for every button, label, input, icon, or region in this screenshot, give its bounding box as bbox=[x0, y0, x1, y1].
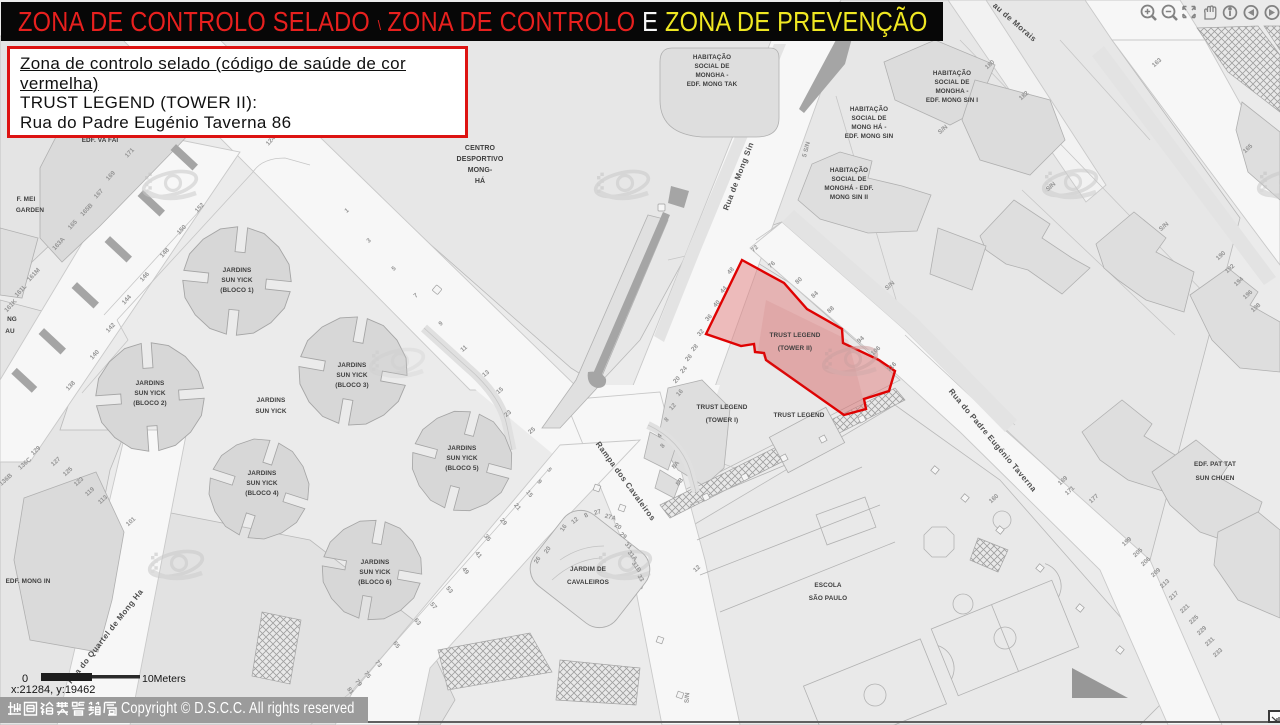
svg-text:MONGHA -: MONGHA - bbox=[695, 72, 728, 79]
svg-text:(BLOCO 4): (BLOCO 4) bbox=[245, 490, 279, 497]
svg-text:HABITAÇÃO: HABITAÇÃO bbox=[850, 104, 888, 113]
svg-text:SUN YICK: SUN YICK bbox=[255, 408, 287, 415]
svg-text:(BLOCO 3): (BLOCO 3) bbox=[335, 382, 369, 389]
svg-text:JARDINS: JARDINS bbox=[248, 470, 277, 477]
svg-text:CENTRO: CENTRO bbox=[465, 145, 496, 152]
svg-text:EDF. MONG SIN I: EDF. MONG SIN I bbox=[926, 97, 978, 104]
svg-text:MONGHA -: MONGHA - bbox=[935, 88, 968, 95]
svg-text:SUN YICK: SUN YICK bbox=[336, 372, 368, 379]
svg-text:EDF. VA FAI: EDF. VA FAI bbox=[82, 137, 119, 144]
svg-text:SUN YICK: SUN YICK bbox=[246, 480, 278, 487]
svg-text:MONG SIN II: MONG SIN II bbox=[830, 194, 868, 201]
svg-text:TRUST LEGEND: TRUST LEGEND bbox=[774, 412, 825, 419]
svg-text:HABITAÇÃO: HABITAÇÃO bbox=[693, 52, 731, 61]
svg-text:ESCOLA: ESCOLA bbox=[814, 582, 842, 589]
svg-text:MONGHÁ - EDF.: MONGHÁ - EDF. bbox=[824, 183, 873, 192]
svg-text:EDF. MONG SIN: EDF. MONG SIN bbox=[845, 133, 894, 140]
svg-text:TRUST LEGEND: TRUST LEGEND bbox=[697, 404, 748, 411]
svg-text:EDF. MONG TAK: EDF. MONG TAK bbox=[687, 81, 738, 88]
svg-text:SUN CHUEN: SUN CHUEN bbox=[1196, 475, 1235, 482]
svg-text:AU: AU bbox=[5, 328, 15, 335]
svg-text:(TOWER I): (TOWER I) bbox=[706, 417, 738, 424]
svg-text:JARDIM DE: JARDIM DE bbox=[570, 566, 607, 573]
svg-text:SOCIAL DE: SOCIAL DE bbox=[694, 63, 729, 70]
svg-text:(BLOCO 2): (BLOCO 2) bbox=[133, 400, 167, 407]
svg-text:10Meters: 10Meters bbox=[142, 673, 186, 685]
svg-text:SUN YICK: SUN YICK bbox=[446, 455, 478, 462]
svg-text:MONG-: MONG- bbox=[468, 167, 493, 174]
svg-text:SUN YICK: SUN YICK bbox=[221, 277, 253, 284]
svg-text:HABITAÇÃO: HABITAÇÃO bbox=[933, 68, 971, 77]
svg-text:(TOWER II): (TOWER II) bbox=[778, 345, 812, 352]
svg-text:EDF. MONG IN: EDF. MONG IN bbox=[6, 578, 51, 585]
svg-text:HABITAÇÃO: HABITAÇÃO bbox=[830, 165, 868, 174]
svg-text:NG: NG bbox=[7, 316, 17, 323]
svg-text:EDF. PAT TAT: EDF. PAT TAT bbox=[1194, 461, 1236, 468]
svg-text:SUN YICK: SUN YICK bbox=[359, 569, 391, 576]
svg-text:SÃO PAULO: SÃO PAULO bbox=[809, 593, 847, 602]
svg-text:JARDINS: JARDINS bbox=[448, 445, 477, 452]
svg-text:(BLOCO 1): (BLOCO 1) bbox=[220, 287, 254, 294]
svg-text:JARDINS: JARDINS bbox=[136, 380, 165, 387]
svg-text:S/N: S/N bbox=[684, 692, 692, 704]
svg-text:JARDINS: JARDINS bbox=[361, 559, 390, 566]
svg-text:DESPORTIVO: DESPORTIVO bbox=[457, 156, 504, 163]
svg-text:SUN YICK: SUN YICK bbox=[134, 390, 166, 397]
svg-text:SOCIAL DE: SOCIAL DE bbox=[851, 115, 886, 122]
svg-text:TRUST LEGEND: TRUST LEGEND bbox=[770, 332, 821, 339]
svg-text:JARDINS: JARDINS bbox=[223, 267, 252, 274]
svg-text:SOCIAL DE: SOCIAL DE bbox=[934, 79, 969, 86]
svg-text:HÁ: HÁ bbox=[475, 176, 485, 185]
svg-text:CAVALEIROS: CAVALEIROS bbox=[567, 579, 610, 586]
svg-text:F. MEI: F. MEI bbox=[17, 196, 36, 203]
svg-text:JARDINS: JARDINS bbox=[338, 362, 367, 369]
svg-text:SOCIAL DE: SOCIAL DE bbox=[831, 176, 866, 183]
svg-text:GARDEN: GARDEN bbox=[16, 207, 45, 214]
svg-text:MONG HÁ -: MONG HÁ - bbox=[851, 122, 886, 131]
svg-text:JARDINS: JARDINS bbox=[257, 397, 286, 404]
svg-text:(BLOCO 6): (BLOCO 6) bbox=[358, 579, 392, 586]
svg-text:(BLOCO 5): (BLOCO 5) bbox=[445, 465, 479, 472]
